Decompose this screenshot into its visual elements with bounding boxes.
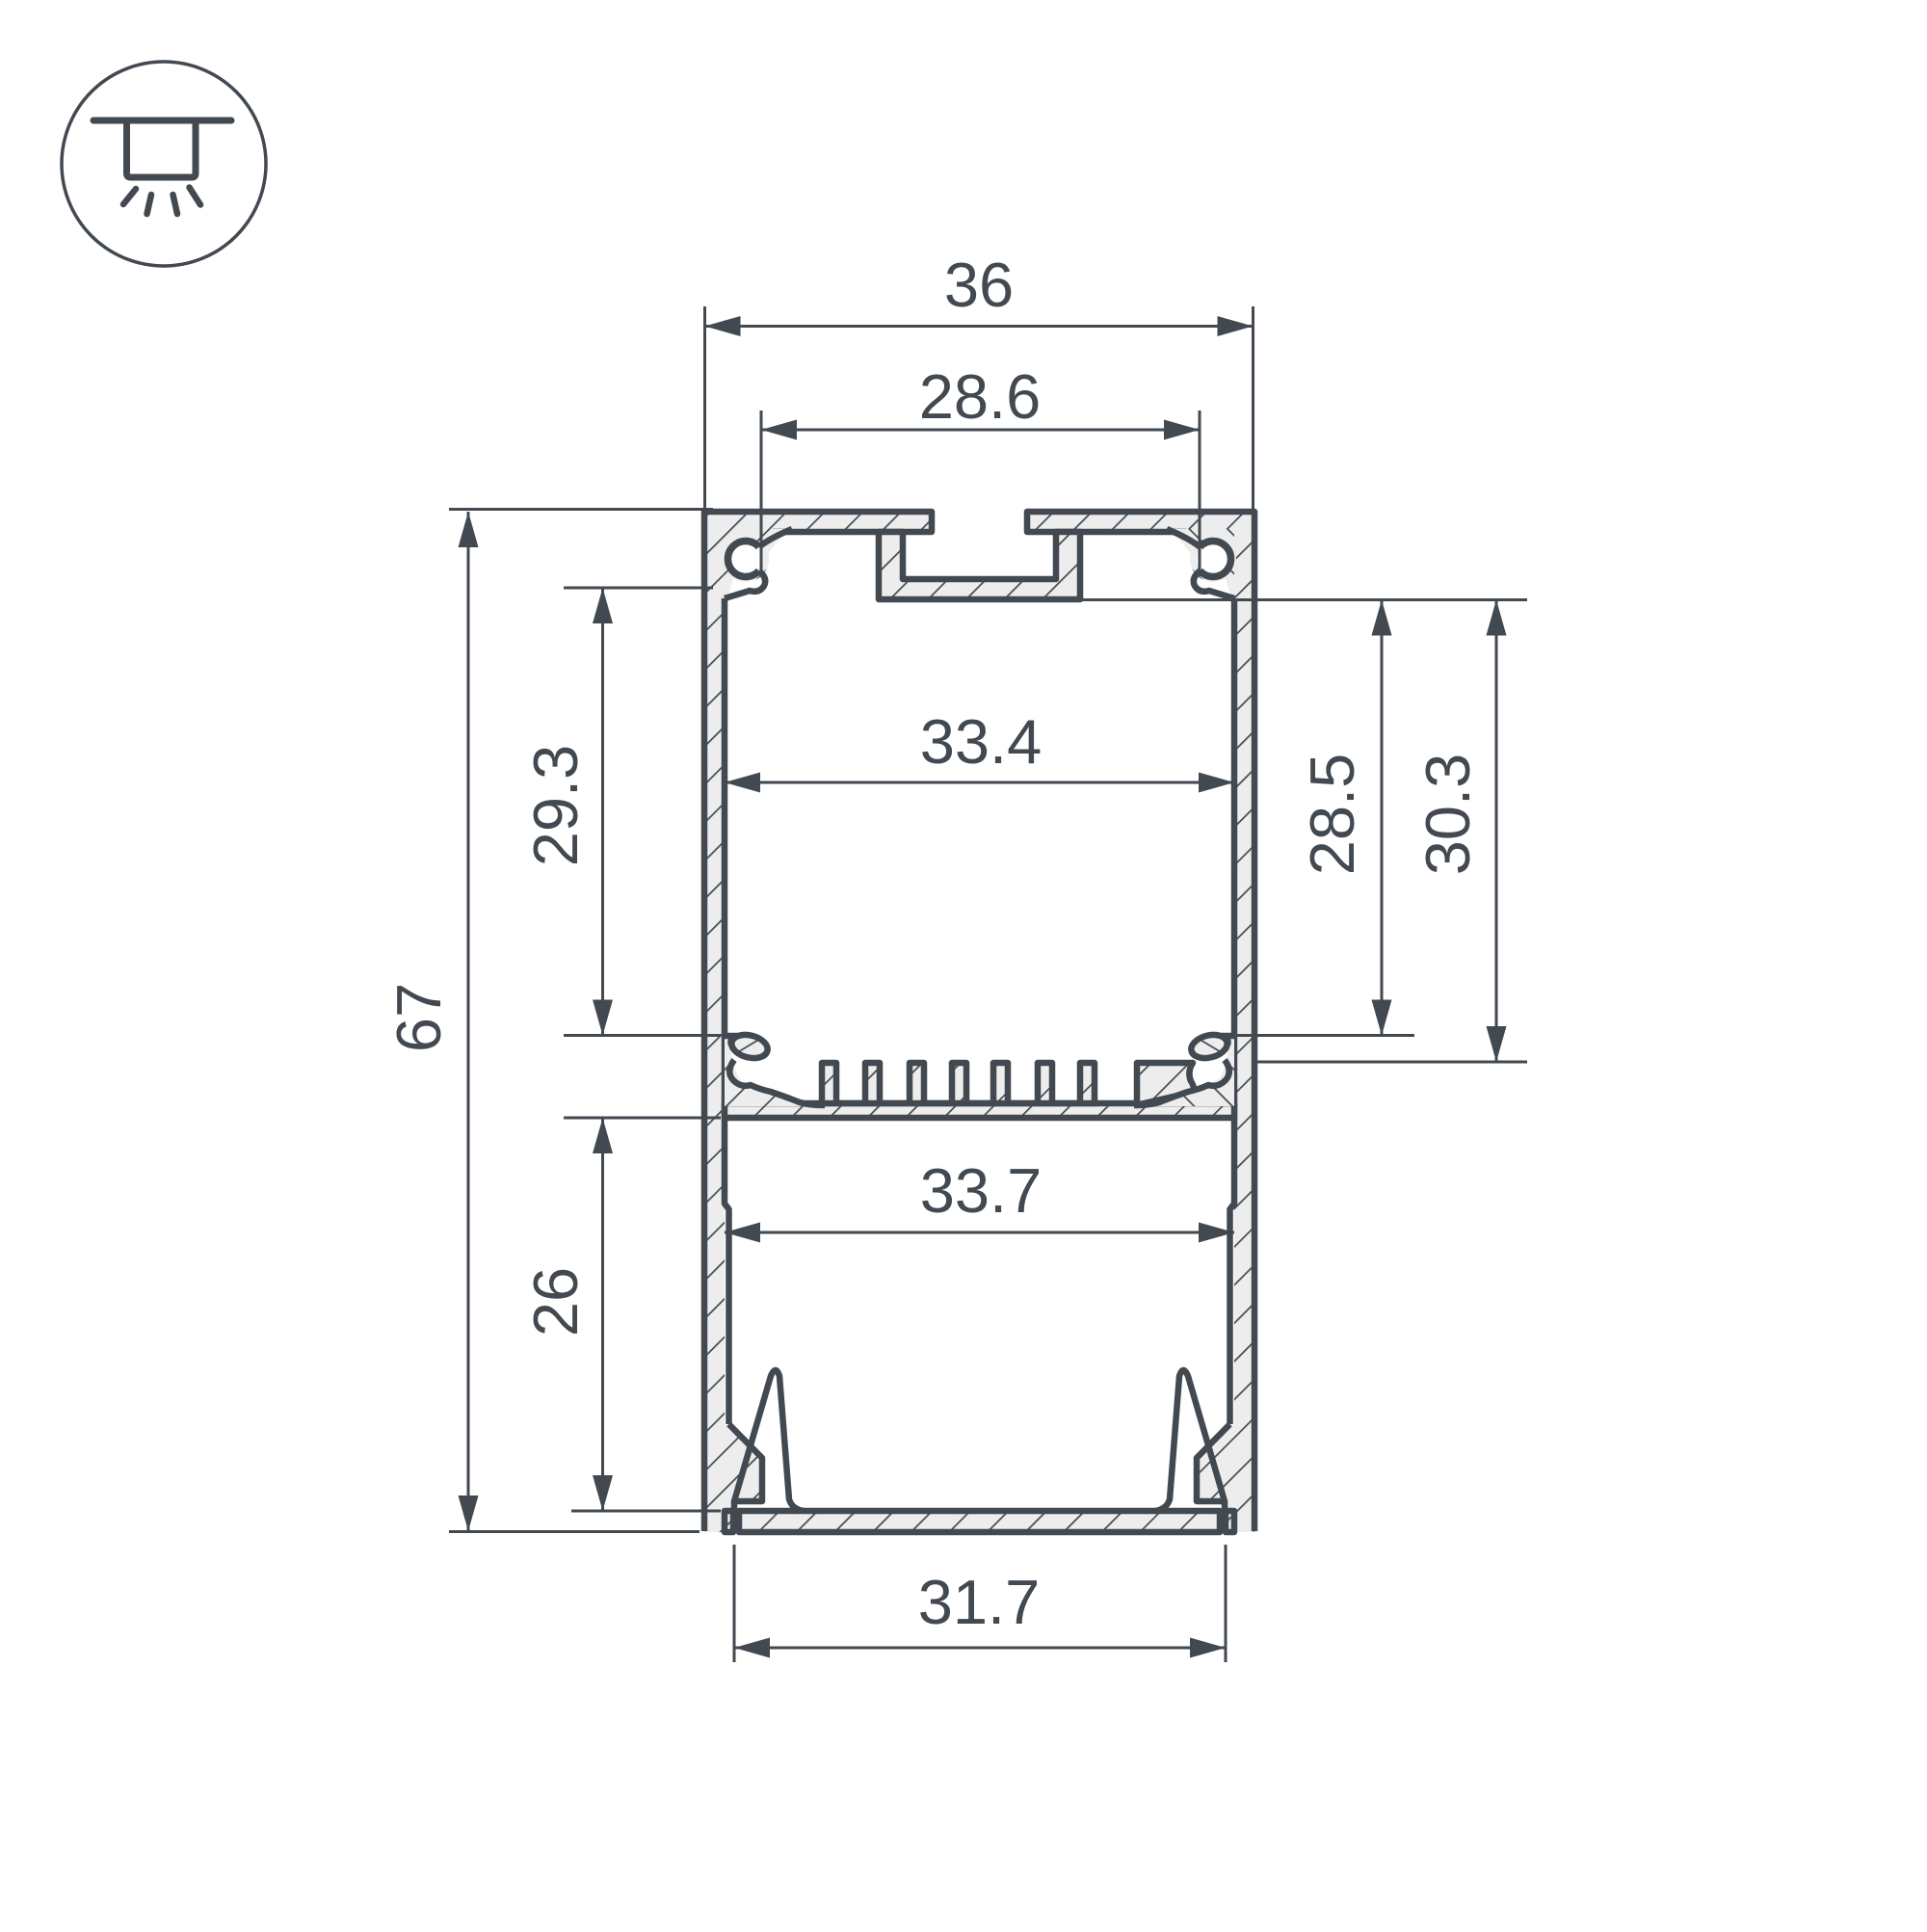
svg-text:28.6: 28.6 <box>919 361 1042 432</box>
svg-text:31.7: 31.7 <box>918 1567 1041 1637</box>
svg-text:29.3: 29.3 <box>520 745 591 867</box>
svg-text:30.3: 30.3 <box>1412 754 1483 876</box>
svg-text:26: 26 <box>520 1267 591 1337</box>
svg-text:28.5: 28.5 <box>1297 754 1367 876</box>
svg-text:36: 36 <box>944 250 1014 320</box>
svg-text:33.7: 33.7 <box>920 1155 1043 1226</box>
svg-text:67: 67 <box>383 983 454 1052</box>
svg-text:33.4: 33.4 <box>920 706 1043 777</box>
